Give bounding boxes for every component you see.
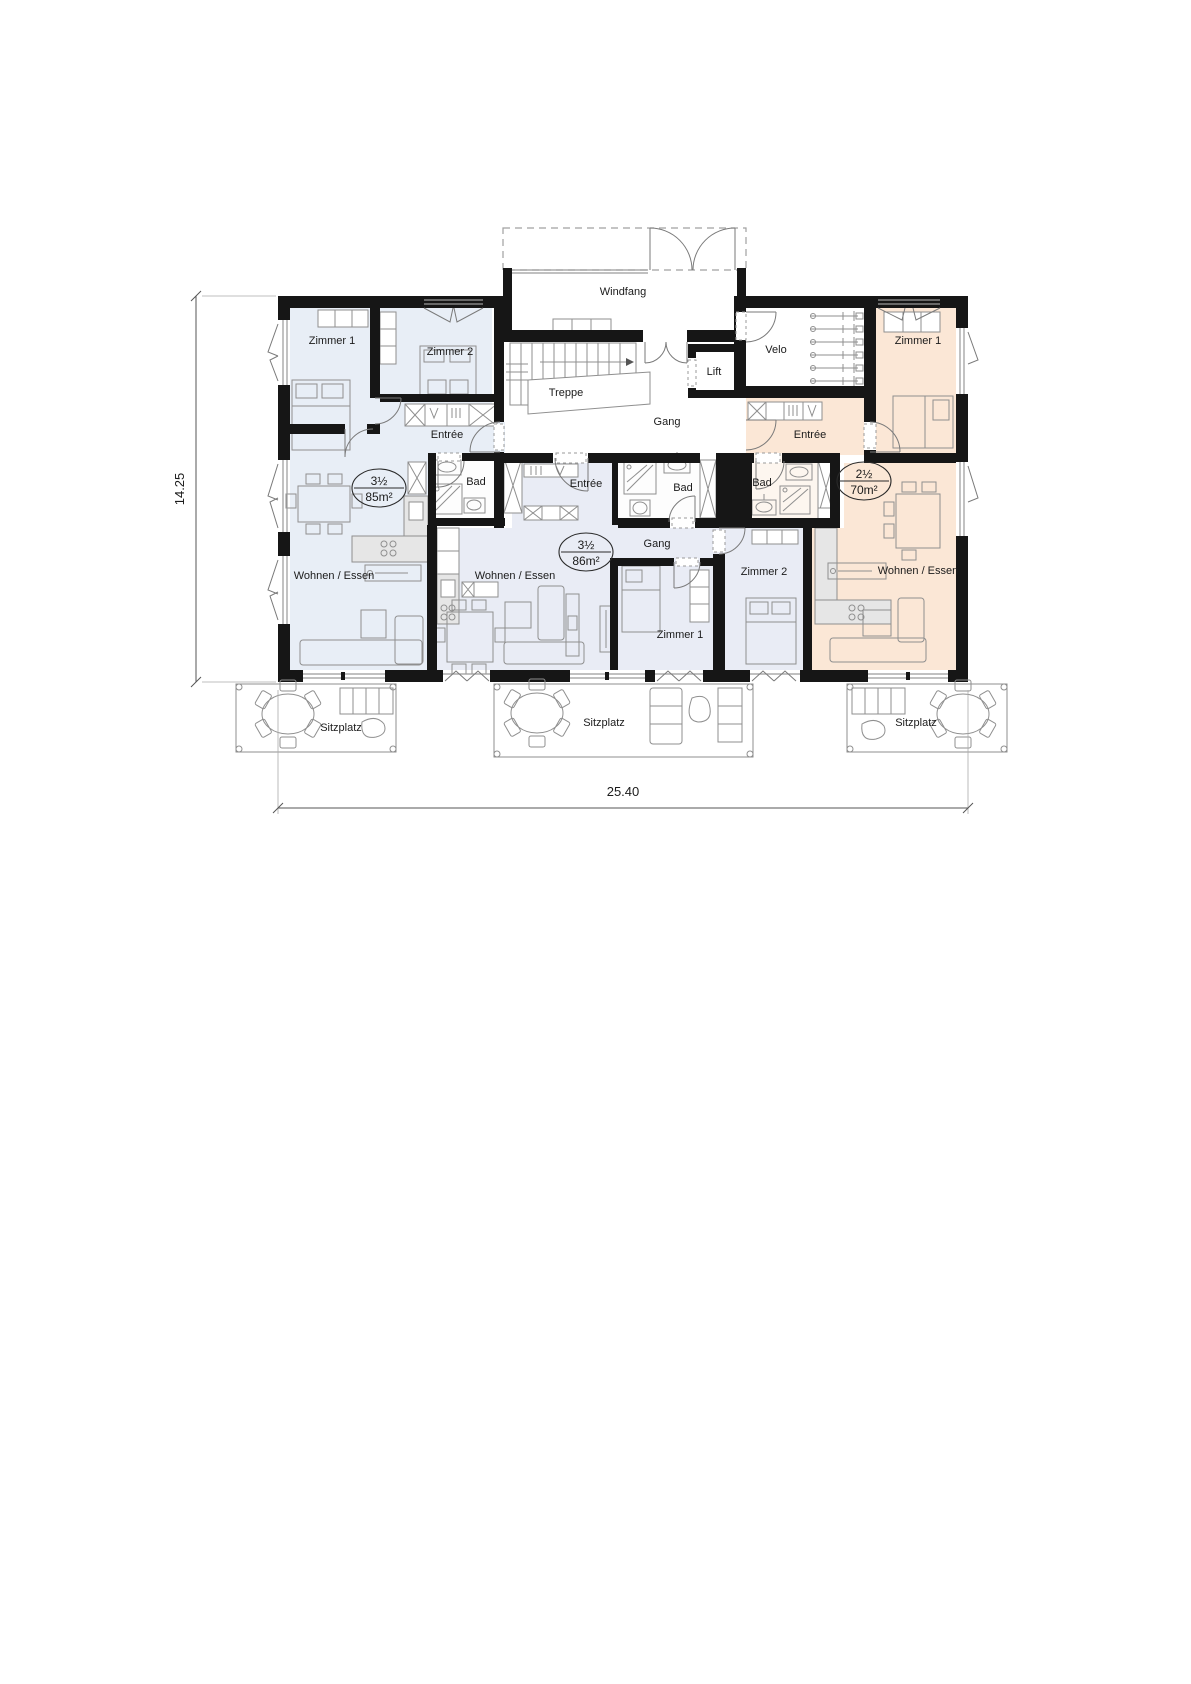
wardrobe-right-entree — [748, 402, 822, 420]
label-right-area: 70m² — [850, 483, 877, 497]
label-right-wohnen: Wohnen / Essen — [878, 565, 959, 577]
dimension-height: 14.25 — [172, 291, 276, 687]
label-left-bad: Bad — [466, 476, 486, 488]
label-middle-type: 3½ — [578, 538, 595, 552]
wardrobe-middle-zimmer1 — [690, 570, 709, 622]
windfang-bench — [553, 319, 611, 331]
terrace-1 — [236, 680, 396, 752]
type-badge-right: 2½ 70m² — [837, 462, 891, 500]
wardrobe-left-entree — [405, 404, 497, 426]
label-left-wohnen: Wohnen / Essen — [294, 570, 375, 582]
label-left-entree: Entrée — [431, 429, 463, 441]
label-treppe: Treppe — [549, 387, 583, 399]
label-velo: Velo — [765, 344, 786, 356]
shaft-middle-right — [700, 460, 716, 518]
label-middle-entree: Entrée — [570, 478, 602, 490]
label-left-zimmer1: Zimmer 1 — [309, 335, 355, 347]
floor-plan-page: 14.25 25.40 Windfang Treppe Gang Lift Ve… — [0, 0, 1191, 1684]
wardrobe-middle-zimmer2 — [752, 530, 798, 544]
label-terrace-3: Sitzplatz — [895, 717, 937, 729]
wardrobe-left-zimmer1 — [318, 310, 368, 327]
stairs-label-box — [528, 372, 650, 414]
type-badge-left: 3½ 85m² — [352, 469, 406, 507]
label-lift: Lift — [707, 366, 722, 378]
label-left-zimmer2: Zimmer 2 — [427, 346, 473, 358]
label-middle-bad: Bad — [673, 482, 693, 494]
dimension-width-label: 25.40 — [607, 784, 640, 799]
label-right-type: 2½ — [856, 467, 873, 481]
shaft-middle-left — [504, 458, 522, 513]
label-terrace-2: Sitzplatz — [583, 717, 625, 729]
label-right-bad: Bad — [752, 477, 772, 489]
floor-plan-svg: 14.25 25.40 Windfang Treppe Gang Lift Ve… — [0, 0, 1191, 1684]
entrance-canopy — [503, 228, 746, 270]
label-middle-zimmer2: Zimmer 2 — [741, 566, 787, 578]
label-gang-core: Gang — [654, 416, 681, 428]
label-middle-wohnen: Wohnen / Essen — [475, 570, 556, 582]
label-left-type: 3½ — [371, 474, 388, 488]
label-middle-area: 86m² — [572, 554, 599, 568]
terrace-3 — [847, 680, 1007, 752]
label-terrace-1: Sitzplatz — [320, 722, 362, 734]
bike-rack — [810, 311, 863, 386]
label-middle-zimmer1: Zimmer 1 — [657, 629, 703, 641]
type-badge-middle: 3½ 86m² — [559, 533, 613, 571]
dimension-height-label: 14.25 — [172, 473, 187, 506]
label-left-area: 85m² — [365, 490, 392, 504]
shaft-left — [408, 462, 426, 494]
label-windfang: Windfang — [600, 286, 646, 298]
label-right-zimmer1: Zimmer 1 — [895, 335, 941, 347]
label-middle-gang: Gang — [644, 538, 671, 550]
label-right-entree: Entrée — [794, 429, 826, 441]
wardrobe-left-zimmer2 — [380, 312, 396, 364]
